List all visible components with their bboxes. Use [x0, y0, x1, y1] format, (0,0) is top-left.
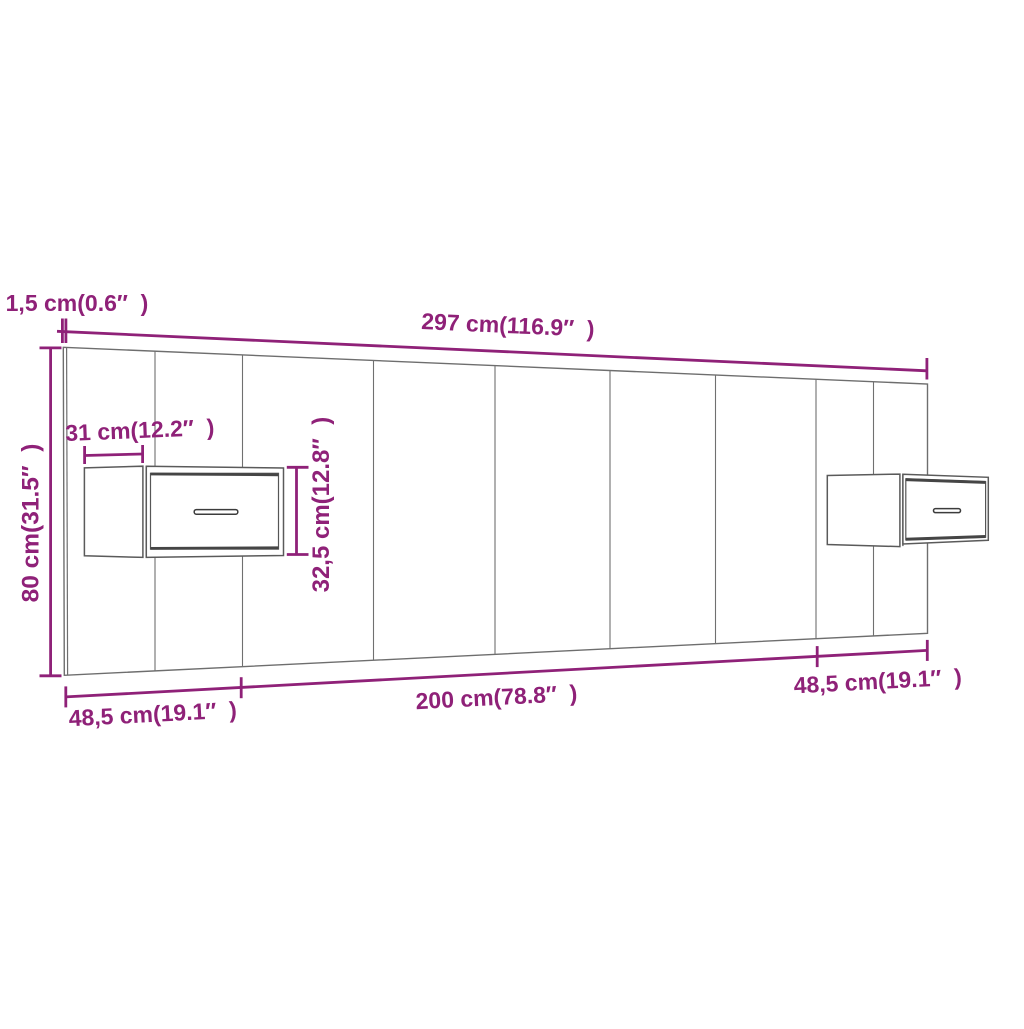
svg-text:32,5 cm(12.8″ ): 32,5 cm(12.8″ ) [308, 417, 335, 593]
svg-text:1,5 cm(0.6″ ): 1,5 cm(0.6″ ) [6, 290, 149, 316]
svg-text:80 cm(31.5″ ): 80 cm(31.5″ ) [17, 444, 44, 603]
